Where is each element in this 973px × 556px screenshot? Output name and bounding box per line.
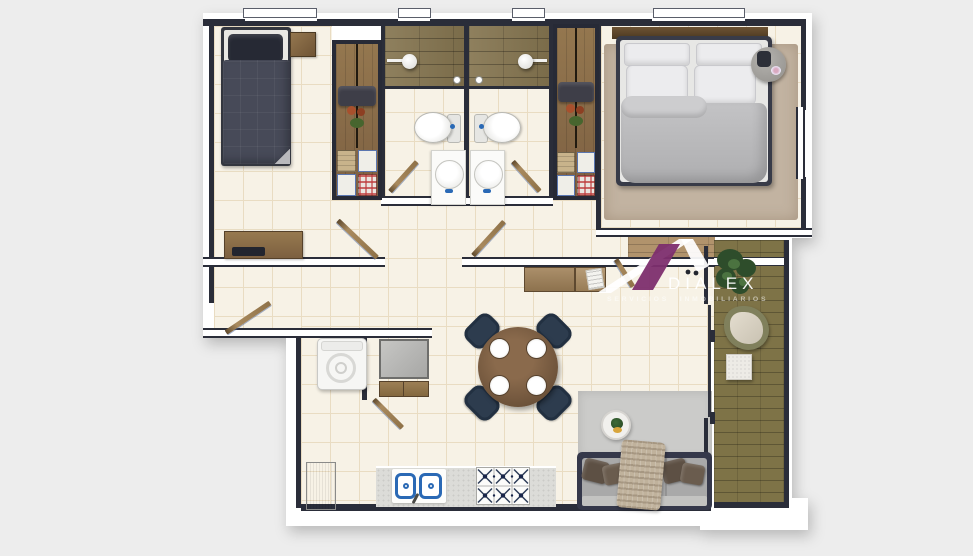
kitchen-sink	[392, 469, 446, 503]
vanity-bath2	[470, 150, 505, 205]
toilet-flush-button	[479, 124, 484, 129]
stove	[476, 467, 530, 505]
wardrobe-1-shelf-2	[358, 150, 377, 172]
mug	[757, 51, 771, 67]
double-bed	[616, 36, 772, 186]
wardrobe-2	[553, 24, 599, 200]
sink-drain-right	[428, 483, 434, 489]
watermark-brand: DIALEX	[668, 274, 758, 294]
wall-lower-left	[296, 338, 301, 508]
balcony-rail-bottom	[714, 502, 784, 508]
fridge-cabinet	[377, 337, 431, 398]
cabinet-drawers	[379, 381, 429, 397]
sideboard-a	[524, 267, 575, 292]
wardrobe-flowers	[345, 106, 369, 132]
wall-bath-bottom	[381, 196, 553, 206]
vanity-faucet	[445, 189, 453, 193]
shower-drain-bath2	[475, 76, 483, 84]
place-setting	[490, 339, 509, 358]
hanging-clothes	[558, 82, 594, 102]
wardrobe-1-shelf-3	[337, 174, 356, 196]
balcony-chair-seat	[730, 312, 763, 344]
balcony-slider-glass	[708, 305, 711, 417]
plate-decor	[613, 427, 622, 433]
throw-blanket	[616, 439, 666, 511]
shower-drain-bath1	[453, 76, 461, 84]
window-bedroom1	[243, 8, 317, 18]
place-setting	[527, 376, 546, 395]
washer-lid-center	[335, 362, 347, 374]
duvet-fold	[621, 96, 707, 118]
window-bath1	[398, 8, 431, 18]
toilet-bowl	[483, 112, 521, 143]
wardrobe-2-shelf-1	[557, 152, 575, 173]
tall-cabinet	[306, 462, 336, 510]
floorplan-render: DIALEX SERVICIOS INMOBILIARIOS	[0, 0, 973, 556]
wall-right-upper-b	[801, 177, 806, 232]
pillow-small-left	[624, 43, 690, 66]
nightstand-decor	[771, 66, 781, 75]
window-master-right	[796, 107, 805, 179]
toilet-bath1	[414, 112, 460, 143]
hanging-clothes	[338, 86, 376, 106]
shower-screen-bath2	[469, 86, 549, 89]
shower-head-bath1	[402, 54, 417, 69]
wall-top-thick-2	[317, 19, 398, 26]
shower-head-bath2	[518, 54, 533, 69]
toilet-bath2	[473, 112, 519, 143]
wardrobe-1	[332, 40, 382, 200]
shower-screen-bath1	[385, 86, 464, 89]
balcony-tick-2	[710, 412, 715, 424]
vanity-bath1	[431, 150, 466, 205]
round-nightstand	[751, 47, 786, 82]
place-setting	[490, 376, 509, 395]
place-setting	[527, 339, 546, 358]
balcony-tick-1	[710, 330, 715, 342]
laptop	[232, 247, 265, 256]
toilet-bowl	[414, 112, 452, 143]
wardrobe-1-shelf-1	[337, 150, 356, 172]
vanity-sink	[474, 160, 503, 189]
duvet-fold-corner	[275, 149, 290, 164]
dining-table	[478, 327, 558, 407]
single-bed-pillow	[228, 34, 283, 62]
watermark-tagline: SERVICIOS INMOBILIARIOS	[607, 296, 768, 303]
washer-control-panel	[321, 341, 363, 351]
sofa-pillow-4	[679, 462, 705, 486]
window-bath2	[512, 8, 545, 18]
wardrobe-1-shelf-4	[358, 174, 377, 196]
vanity-sink	[435, 160, 464, 189]
toilet-flush-button	[450, 124, 455, 129]
balcony-side-table	[726, 354, 752, 380]
wall-top-thick-3	[430, 19, 512, 26]
wall-top-thick-5	[745, 19, 806, 26]
watermark: DIALEX SERVICIOS INMOBILIARIOS	[575, 225, 785, 310]
coffee-table	[601, 410, 631, 440]
wardrobe-flowers	[564, 104, 588, 130]
vanity-faucet	[483, 189, 491, 193]
window-master-top	[653, 8, 745, 18]
wall-right-upper-a	[801, 21, 806, 110]
sink-drain-left	[403, 483, 409, 489]
single-bed	[221, 27, 291, 166]
washing-machine	[317, 338, 367, 390]
wardrobe-2-shelf-2	[577, 152, 595, 173]
wardrobe-2-shelf-3	[557, 175, 575, 196]
nightstand-bedroom1	[290, 32, 316, 57]
fridge-top	[379, 339, 429, 379]
wardrobe-2-shelf-4	[577, 175, 595, 196]
